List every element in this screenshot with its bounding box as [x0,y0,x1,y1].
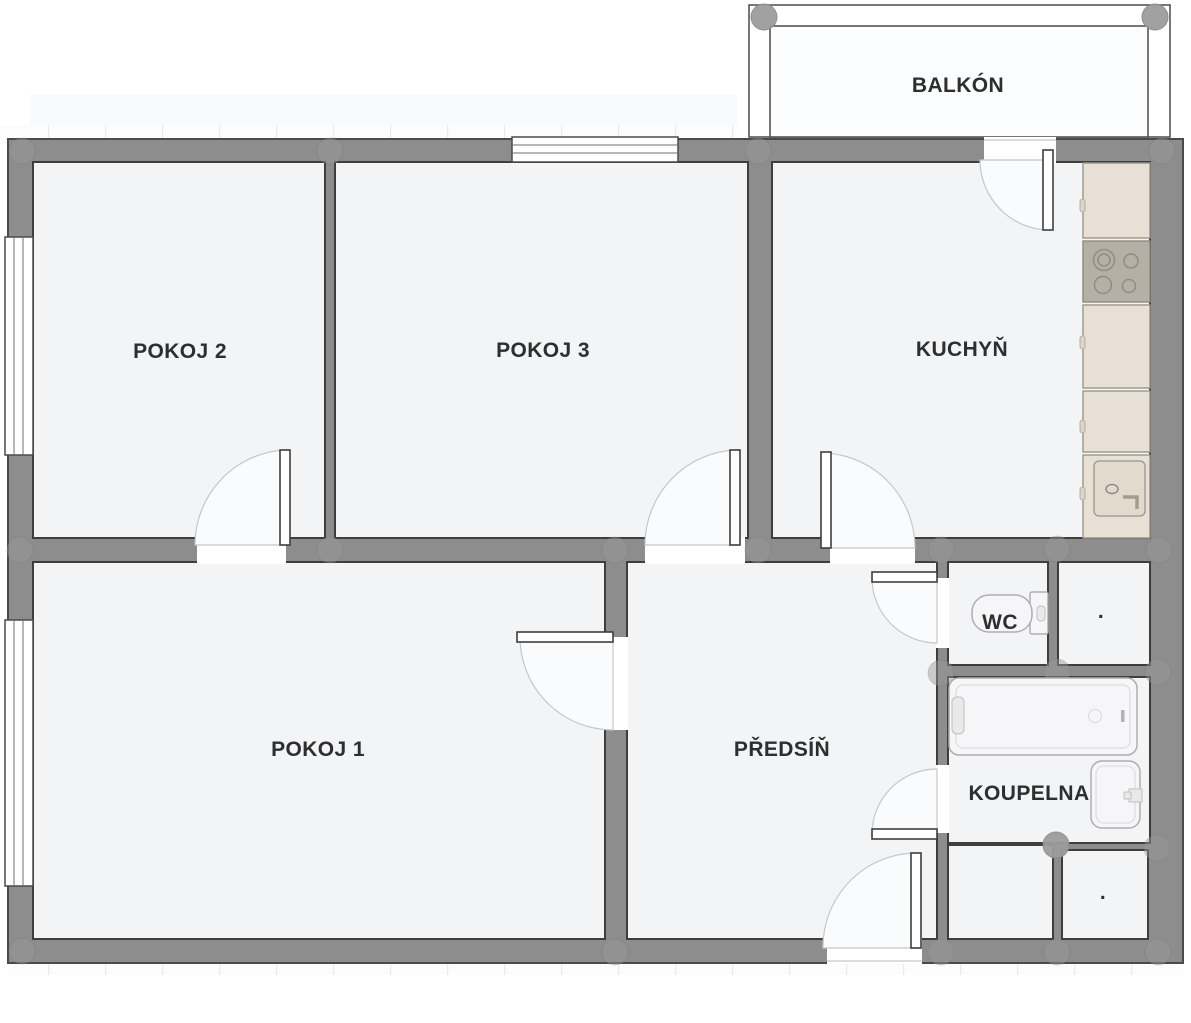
wall-junction-dot [7,537,33,563]
room-label-koupelna: KOUPELNA [968,782,1089,805]
wall-junction-dot [317,537,343,563]
kitchen-counter-segment [1083,391,1150,452]
wall-junction-dot [317,138,343,164]
window-left-lower [5,620,33,886]
wall-junction-dot [602,537,628,563]
washbasin-tap-icon [1124,792,1131,799]
room-koupelna-annex [948,845,1053,939]
wall-junction-dot [1145,939,1171,965]
door-leaf-pokoj1 [517,632,613,642]
window-top [512,137,678,162]
cabinet-handle-icon [1080,487,1085,500]
wall-junction-dot [745,138,771,164]
door-leaf-kuchyn [821,452,831,548]
room-label-pokoj3: POKOJ 3 [496,339,590,362]
door-opening-koupelna [936,765,949,833]
wall-junction-dot [1142,4,1168,30]
bathtub-headrest-icon [952,697,964,734]
door-leaf-koupelna [872,829,937,839]
kitchen-fixtures [1080,163,1150,538]
door-leaf-wc [872,572,937,582]
door-leaf-balcony [1043,150,1053,230]
door-leaf-entrance [911,853,921,948]
door-leaf-pokoj3 [730,450,740,545]
bottom-ruler-ticks [8,963,1183,975]
room-label-wc: WC [982,611,1018,634]
wall-junction-dot [928,537,954,563]
wall-junction-dot [1144,835,1170,861]
cabinet-handle-icon [1080,199,1085,212]
room-label-kuchyn: KUCHYŇ [916,337,1008,361]
wall-junction-dot [1145,659,1171,685]
floor-plan-canvas: BALKÓN POKOJ 2 POKOJ 3 KUCHYŇ POKOJ 1 PŘ… [0,0,1191,1023]
bathtub-faucet-icon [1121,710,1125,722]
kitchen-counter-segment [1083,163,1150,238]
background-panel [30,95,737,126]
storage-bottom-dot: . [1100,881,1106,904]
kitchen-counter-segment [1083,305,1150,388]
room-label-predsin: PŘEDSÍŇ [734,737,830,761]
wall-junction-dot [1044,536,1070,562]
toilet-flush-button-icon [1037,606,1045,621]
storage-top-dot: . [1098,600,1104,623]
wall-junction-dot [1044,939,1070,965]
wall-junction-dot [9,938,35,964]
wall-junction-dot [751,4,777,30]
bathtub-icon [949,678,1137,755]
door-opening-wc [936,578,949,648]
stove-icon [1083,241,1150,302]
window-left-upper [5,237,33,455]
door-leaf-pokoj2 [280,450,290,545]
wall-junction-dot [1043,832,1069,858]
wall-junction-dot [1146,537,1172,563]
wall-junction-dot [928,939,954,965]
wall-junction-dot [602,939,628,965]
cabinet-handle-icon [1080,336,1085,349]
wall-junction-dot [9,138,35,164]
balcony [749,4,1170,137]
room-label-pokoj1: POKOJ 1 [271,738,365,761]
cabinet-handle-icon [1080,420,1085,433]
room-label-balkon: BALKÓN [912,73,1004,97]
wall-junction-dot [1149,138,1175,164]
wall-junction-dot [745,537,771,563]
room-label-pokoj2: POKOJ 2 [133,340,227,363]
floor-plan-drawing: BALKÓN POKOJ 2 POKOJ 3 KUCHYŇ POKOJ 1 PŘ… [0,0,1191,1023]
